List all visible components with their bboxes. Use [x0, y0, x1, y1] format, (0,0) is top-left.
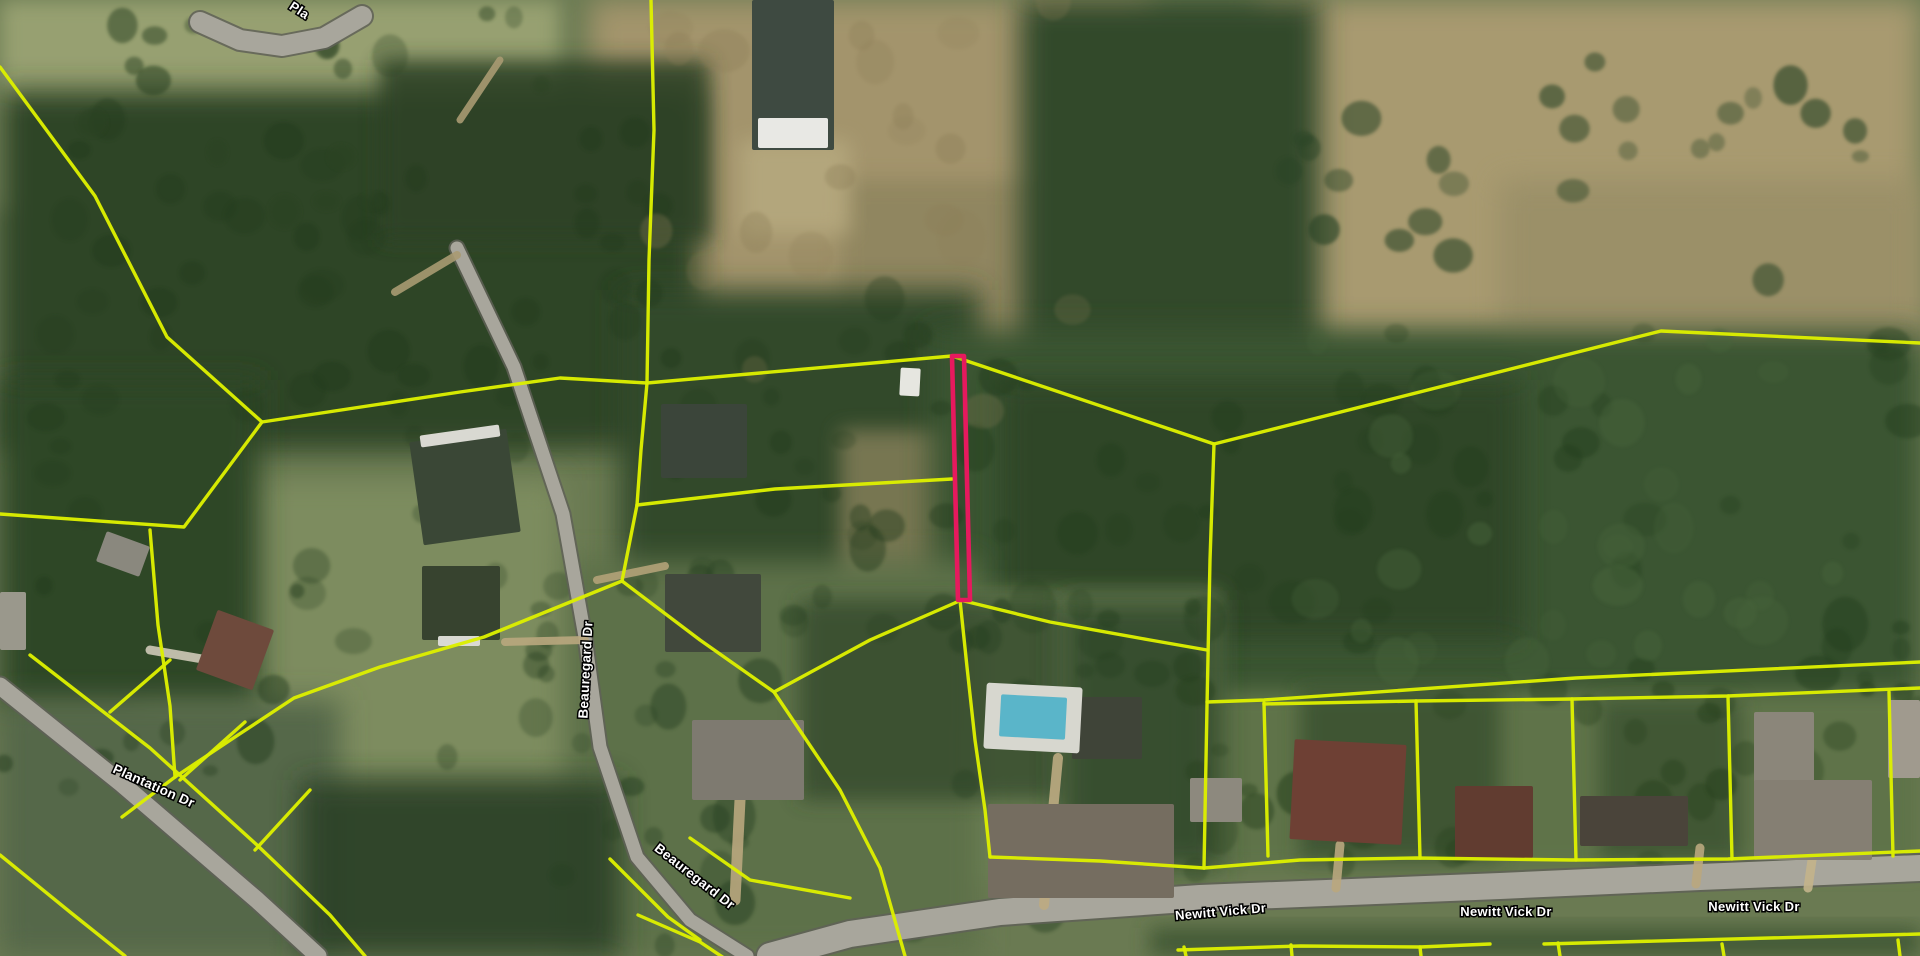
- road-label-newitt-3: Newitt Vick Dr: [1708, 899, 1799, 914]
- tree-canopy: [1275, 157, 1302, 185]
- tree-canopy: [1720, 496, 1741, 515]
- tree-canopy: [795, 458, 815, 475]
- tree-canopy: [575, 208, 600, 238]
- house-partial: [1190, 778, 1242, 822]
- tree-canopy: [1324, 169, 1353, 192]
- tree-canopy: [600, 269, 631, 305]
- tree-canopy: [1476, 491, 1493, 507]
- tree-canopy: [1539, 510, 1567, 544]
- tree-canopy: [831, 431, 856, 450]
- tree-canopy: [1869, 346, 1908, 385]
- tree-canopy: [505, 6, 523, 28]
- house-partial: [1888, 700, 1920, 778]
- tree-canopy: [937, 17, 979, 50]
- driveway: [1336, 845, 1340, 888]
- tree-canopy: [1773, 65, 1807, 105]
- tree-canopy: [1184, 596, 1227, 642]
- tree-canopy: [609, 303, 642, 340]
- house: [692, 720, 804, 800]
- tree-canopy: [437, 744, 457, 770]
- tree-canopy: [1426, 491, 1464, 538]
- tree-canopy: [360, 192, 384, 209]
- tree-canopy: [141, 288, 178, 318]
- tree-canopy: [1336, 371, 1364, 407]
- parcel-boundary[interactable]: [1291, 945, 1292, 956]
- house: [1455, 786, 1533, 858]
- tree-canopy: [1644, 467, 1679, 501]
- parcel-boundary[interactable]: [1558, 943, 1560, 956]
- tree-canopy: [92, 234, 131, 266]
- tree-canopy: [1892, 621, 1910, 635]
- tree-canopy: [55, 371, 80, 389]
- tree-canopy: [700, 804, 730, 833]
- driveway: [735, 800, 740, 900]
- tree-canopy: [1211, 744, 1229, 757]
- tree-canopy: [1892, 638, 1910, 661]
- driveway: [1808, 860, 1812, 888]
- parcel-boundary[interactable]: [1420, 947, 1421, 956]
- tree-canopy: [904, 322, 933, 348]
- tree-canopy: [549, 864, 574, 886]
- tree-canopy: [640, 213, 672, 248]
- tree-canopy: [257, 675, 289, 705]
- tree-canopy: [780, 605, 807, 626]
- tree-canopy: [156, 174, 185, 203]
- tree-canopy: [1744, 87, 1762, 109]
- tree-canopy: [27, 403, 66, 431]
- tree-canopy: [264, 122, 304, 159]
- tree-canopy: [949, 629, 974, 653]
- tree-canopy: [930, 401, 951, 416]
- tree-canopy: [962, 394, 1004, 429]
- tree-canopy: [1559, 115, 1589, 143]
- tree-canopy: [50, 439, 71, 454]
- tree-canopy: [661, 348, 682, 368]
- tree-canopy: [1843, 118, 1867, 143]
- tree-canopy: [1505, 637, 1549, 685]
- tree-canopy: [1427, 146, 1451, 174]
- tree-canopy: [142, 26, 167, 44]
- tree-canopy: [1852, 150, 1869, 162]
- tree-canopy: [35, 577, 52, 596]
- parcel-boundary[interactable]: [1898, 940, 1900, 956]
- tree-canopy: [207, 140, 227, 165]
- tree-canopy: [572, 733, 592, 753]
- tree-canopy: [397, 364, 430, 388]
- tree-canopy: [839, 327, 870, 354]
- tree-canopy: [1404, 632, 1437, 666]
- tree-canopy: [372, 34, 408, 77]
- house: [1754, 780, 1872, 860]
- tree-canopy: [1634, 630, 1662, 661]
- tree-canopy: [1068, 589, 1093, 622]
- tree-canopy: [1758, 361, 1788, 383]
- tree-canopy: [1553, 357, 1605, 407]
- tree-canopy: [36, 315, 74, 353]
- parcel-boundary[interactable]: [1184, 947, 1186, 956]
- terrain-patch: [1500, 180, 1920, 350]
- tree-canopy: [620, 117, 651, 148]
- tree-canopy: [293, 548, 330, 584]
- tree-canopy: [1292, 579, 1339, 619]
- farm-building-front: [758, 118, 828, 148]
- tree-canopy: [1433, 238, 1472, 272]
- tree-canopy: [742, 356, 768, 383]
- tree-canopy: [1163, 504, 1200, 542]
- tree-canopy: [405, 165, 426, 191]
- parcel-boundary[interactable]: [1722, 944, 1724, 956]
- tree-canopy: [301, 269, 345, 302]
- tree-canopy: [1211, 401, 1243, 433]
- tree-canopy: [1222, 433, 1240, 454]
- tree-canopy: [976, 620, 1002, 654]
- tree-canopy: [1410, 371, 1461, 410]
- tree-canopy: [651, 684, 687, 730]
- tree-canopy: [1105, 513, 1133, 546]
- tree-canopy: [335, 628, 372, 654]
- tree-canopy: [290, 584, 304, 599]
- tree-canopy: [59, 779, 79, 796]
- tree-canopy: [1134, 660, 1170, 687]
- tree-canopy: [1433, 691, 1467, 720]
- tree-canopy: [698, 29, 749, 72]
- tree-canopy: [1676, 364, 1702, 395]
- tree-canopy: [993, 519, 1015, 543]
- tree-canopy: [1683, 581, 1715, 618]
- house: [1580, 796, 1688, 846]
- pool-house: [1072, 697, 1142, 759]
- tree-canopy: [655, 661, 675, 677]
- map-canvas[interactable]: PlaPlantation DrBeauregard DrBeauregard …: [0, 0, 1920, 956]
- tree-canopy: [1661, 760, 1686, 786]
- tree-canopy: [849, 525, 886, 571]
- trailer: [899, 367, 920, 396]
- tree-canopy: [865, 276, 905, 321]
- tree-canopy: [812, 585, 831, 609]
- terrain-patch: [1150, 928, 1920, 956]
- tree-canopy: [1467, 522, 1492, 545]
- tree-canopy: [136, 66, 171, 96]
- road-label-newitt-2: Newitt Vick Dr: [1460, 904, 1551, 919]
- tree-canopy: [532, 353, 548, 370]
- tree-canopy: [1654, 503, 1694, 554]
- tree-canopy: [294, 223, 320, 251]
- tree-canopy: [538, 665, 555, 682]
- tree-canopy: [203, 765, 218, 776]
- house: [422, 566, 500, 640]
- tree-canopy: [1708, 133, 1725, 151]
- house: [661, 404, 747, 478]
- tree-canopy: [1009, 579, 1056, 634]
- tree-canopy: [230, 390, 265, 422]
- tree-canopy: [1351, 619, 1372, 643]
- tree-canopy: [1239, 793, 1274, 829]
- swimming-pool: [999, 694, 1067, 739]
- tree-canopy: [68, 497, 102, 527]
- tree-canopy: [327, 144, 355, 169]
- tree-canopy: [1704, 687, 1735, 719]
- tree-canopy: [107, 8, 138, 43]
- tree-canopy: [51, 198, 88, 241]
- tree-canopy: [1198, 505, 1217, 519]
- tree-canopy: [789, 231, 833, 279]
- tree-canopy: [1624, 719, 1647, 745]
- tree-canopy: [952, 770, 979, 799]
- house: [665, 574, 761, 652]
- tree-canopy: [770, 431, 792, 454]
- tree-canopy: [1562, 427, 1600, 458]
- tree-canopy: [34, 460, 71, 486]
- tree-canopy: [937, 209, 986, 268]
- house: [1289, 739, 1406, 845]
- tree-canopy: [1598, 524, 1645, 569]
- tree-canopy: [1293, 131, 1314, 147]
- house: [988, 804, 1174, 898]
- tree-canopy: [1334, 488, 1373, 533]
- tree-canopy: [936, 133, 966, 163]
- tree-canopy: [575, 185, 597, 204]
- tree-canopy: [179, 261, 205, 285]
- driveway: [505, 640, 585, 642]
- tree-canopy: [1613, 96, 1640, 123]
- tree-canopy: [1717, 102, 1744, 125]
- tree-canopy: [1097, 443, 1126, 477]
- tree-canopy: [1307, 328, 1328, 355]
- house-partial: [0, 592, 26, 650]
- tree-canopy: [579, 127, 602, 151]
- tree-canopy: [856, 40, 894, 85]
- tree-canopy: [1599, 399, 1644, 447]
- tree-canopy: [1800, 99, 1830, 128]
- tree-canopy: [1557, 179, 1590, 202]
- tree-canopy: [1593, 566, 1643, 606]
- tree-canopy: [1586, 641, 1616, 668]
- tree-canopy: [635, 704, 658, 726]
- tree-canopy: [479, 6, 496, 21]
- tree-canopy: [533, 76, 550, 93]
- tree-canopy: [1057, 512, 1098, 555]
- tree-canopy: [1540, 610, 1566, 641]
- tree-canopy: [1691, 139, 1710, 159]
- tree-canopy: [313, 192, 340, 211]
- tree-canopy: [1584, 52, 1605, 71]
- tree-canopy: [334, 59, 352, 79]
- tree-canopy: [1752, 263, 1783, 296]
- tree-canopy: [825, 164, 856, 189]
- tree-canopy: [1408, 208, 1442, 235]
- tree-canopy: [1369, 414, 1413, 458]
- tree-canopy: [464, 345, 499, 388]
- tree-canopy: [1136, 473, 1160, 493]
- driveway: [1696, 848, 1700, 884]
- tree-canopy: [648, 11, 693, 45]
- tree-canopy: [1377, 549, 1421, 589]
- tree-canopy: [687, 251, 723, 290]
- tree-canopy: [81, 385, 119, 415]
- tree-canopy: [1234, 563, 1265, 592]
- tree-canopy: [1384, 324, 1408, 343]
- map-viewport: PlaPlantation DrBeauregard DrBeauregard …: [0, 0, 1920, 956]
- tree-canopy: [1309, 214, 1340, 245]
- tree-canopy: [1453, 447, 1488, 488]
- tree-canopy: [77, 289, 109, 314]
- tree-canopy: [1385, 229, 1414, 252]
- tree-canopy: [1724, 598, 1757, 629]
- tree-canopy: [68, 141, 91, 159]
- tree-canopy: [1619, 141, 1638, 160]
- tree-canopy: [1362, 598, 1392, 623]
- tree-canopy: [313, 362, 351, 391]
- tree-canopy: [740, 212, 772, 253]
- tree-canopy: [1054, 294, 1090, 324]
- tree-canopy: [368, 330, 410, 373]
- tree-canopy: [347, 220, 385, 256]
- tree-canopy: [268, 195, 301, 229]
- tree-canopy: [511, 298, 540, 326]
- tree-canopy: [1823, 721, 1856, 750]
- tree-canopy: [763, 388, 779, 405]
- tree-canopy: [1795, 656, 1840, 691]
- tree-canopy: [1539, 84, 1565, 108]
- tree-canopy: [1342, 101, 1382, 136]
- tree-canopy: [1842, 533, 1859, 550]
- tree-canopy: [519, 698, 553, 737]
- tree-canopy: [600, 234, 624, 251]
- tree-canopy: [1439, 171, 1469, 196]
- tree-canopy: [77, 108, 107, 137]
- tree-canopy: [893, 103, 914, 130]
- tree-canopy: [224, 198, 265, 234]
- tree-canopy: [1076, 664, 1094, 678]
- terrain-patch: [300, 780, 620, 956]
- tree-canopy: [1822, 561, 1843, 585]
